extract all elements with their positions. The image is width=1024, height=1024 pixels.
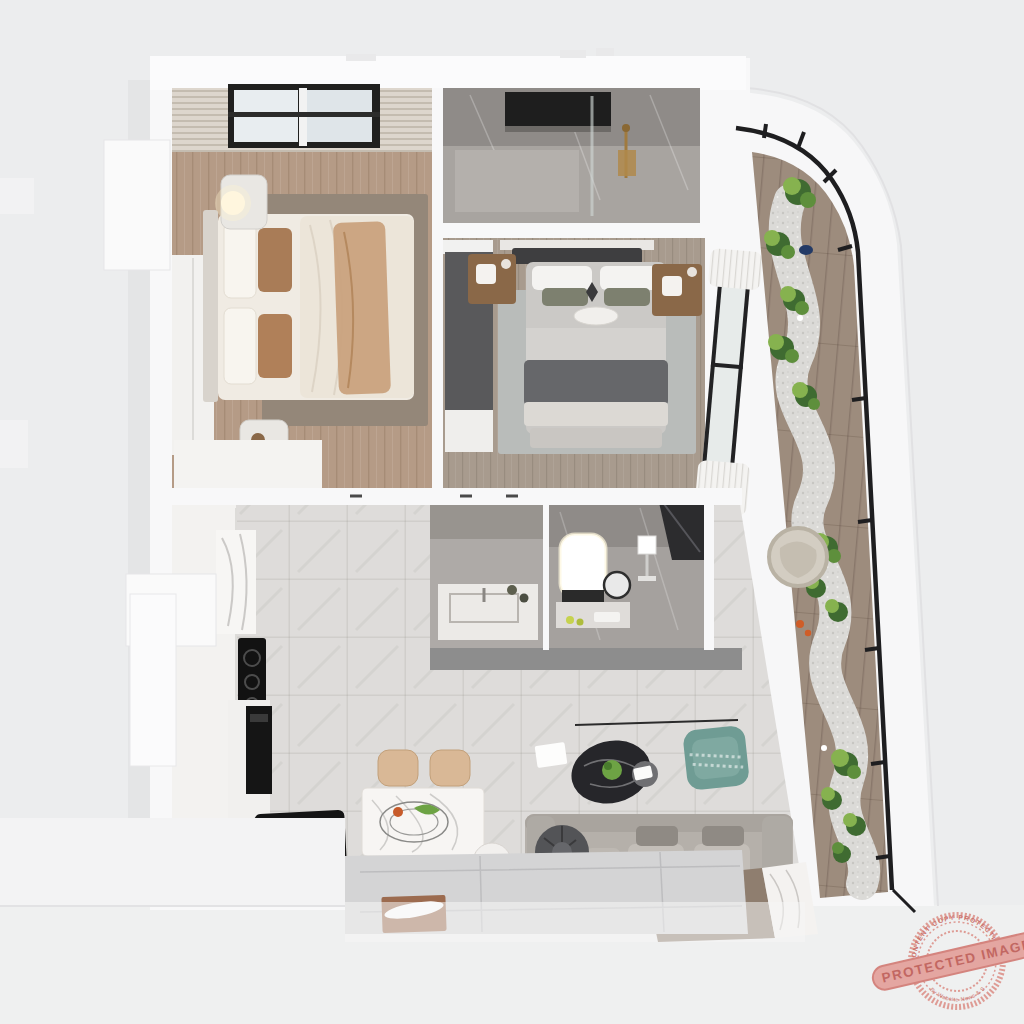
vanity-bathroom: [548, 498, 704, 650]
bedroom1-bench: [174, 440, 322, 488]
shower-floor: [455, 150, 579, 212]
entry-platform: [0, 818, 345, 906]
bedroom1-skylight-window: [228, 84, 380, 148]
lit-vanity-mirror: [560, 534, 606, 602]
basin-counter: [438, 584, 538, 640]
round-mirror: [604, 572, 630, 598]
table-plant: [602, 760, 622, 780]
dining-table: [362, 788, 484, 856]
bedroom-1: [172, 84, 432, 488]
ensuite-shower-room: [443, 88, 700, 224]
sofa-back-pillow-2: [702, 826, 744, 846]
paper-sheet: [535, 742, 568, 768]
fruit: [393, 807, 403, 817]
floor-plan-render: CONTENT COPY PROTECTION By Website News …: [0, 0, 1024, 1024]
orange-flowers: [796, 620, 804, 628]
folded-blanket: [524, 360, 668, 406]
nightstand-left: [468, 254, 516, 304]
curtain-top: [708, 248, 763, 290]
teal-armchair: [682, 725, 750, 791]
ceiling-niche: [505, 92, 611, 128]
exterior-column: [130, 594, 176, 766]
low-wall-band: [430, 648, 742, 670]
sofa-back-pillow: [636, 826, 678, 846]
bedroom-2: [443, 238, 769, 516]
bedroom1-bed: [203, 210, 414, 402]
hall-wall: [172, 488, 742, 505]
marble-column: [216, 530, 256, 634]
washbasin-nook: [430, 505, 544, 650]
nightstand-top: [215, 175, 267, 229]
navy-flowers: [799, 245, 813, 255]
floor-plan-svg: CONTENT COPY PROTECTION By Website News …: [0, 0, 1024, 1024]
exterior-box-top: [104, 140, 170, 270]
nightstand-right: [652, 264, 702, 316]
papasan-chair: [769, 528, 827, 586]
